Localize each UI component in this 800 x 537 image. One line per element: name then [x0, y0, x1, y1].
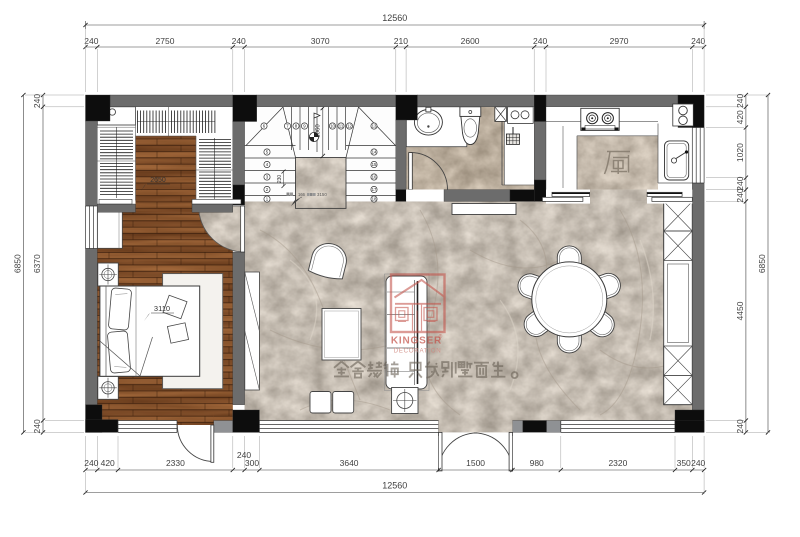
svg-text:13: 13 — [372, 124, 377, 129]
svg-text:4450: 4450 — [735, 301, 745, 320]
svg-text:®: ® — [439, 333, 443, 340]
svg-text:17: 17 — [372, 187, 377, 192]
svg-text:15: 15 — [372, 162, 377, 167]
svg-text:16: 16 — [372, 175, 377, 180]
svg-text:240: 240 — [735, 419, 745, 433]
svg-text:2970: 2970 — [610, 36, 629, 46]
svg-text:18: 18 — [372, 197, 377, 202]
svg-text:240: 240 — [32, 94, 42, 108]
svg-text:240: 240 — [735, 188, 745, 202]
svg-text:420: 420 — [101, 458, 115, 468]
svg-text:980: 980 — [530, 458, 544, 468]
svg-text:6850: 6850 — [12, 254, 22, 273]
svg-text:2320: 2320 — [608, 458, 627, 468]
svg-text:6370: 6370 — [32, 254, 42, 273]
svg-text:240: 240 — [32, 419, 42, 433]
svg-text:12560: 12560 — [382, 481, 407, 491]
svg-text:166: 166 — [298, 192, 306, 197]
svg-text:420: 420 — [735, 110, 745, 124]
svg-text:2330: 2330 — [166, 458, 185, 468]
svg-text:210: 210 — [394, 36, 408, 46]
svg-text:2600: 2600 — [461, 36, 480, 46]
svg-text:2650: 2650 — [150, 177, 166, 184]
svg-text:230: 230 — [277, 175, 283, 184]
svg-text:14: 14 — [372, 150, 377, 155]
svg-text:240: 240 — [691, 458, 705, 468]
svg-text:11: 11 — [339, 124, 344, 129]
svg-text:240: 240 — [232, 36, 246, 46]
svg-text:10: 10 — [330, 124, 335, 129]
svg-text:6850: 6850 — [757, 254, 767, 273]
svg-text:240: 240 — [533, 36, 547, 46]
svg-text:240: 240 — [84, 36, 98, 46]
svg-text:350: 350 — [677, 458, 691, 468]
svg-text:300: 300 — [245, 458, 259, 468]
svg-text:3110: 3110 — [154, 304, 170, 313]
svg-text:12560: 12560 — [382, 13, 407, 23]
svg-text:240: 240 — [84, 458, 98, 468]
svg-text:240: 240 — [691, 36, 705, 46]
svg-text:3070: 3070 — [311, 36, 330, 46]
svg-text:2750: 2750 — [156, 36, 175, 46]
svg-text:DECORATION: DECORATION — [394, 347, 442, 354]
svg-text:KINGSER: KINGSER — [391, 336, 442, 347]
svg-text:3150: 3150 — [317, 192, 327, 197]
svg-text:240: 240 — [735, 94, 745, 108]
svg-text:12: 12 — [347, 124, 352, 129]
svg-text:3640: 3640 — [340, 458, 359, 468]
svg-text:1020: 1020 — [735, 143, 745, 162]
svg-text:1500: 1500 — [466, 458, 485, 468]
